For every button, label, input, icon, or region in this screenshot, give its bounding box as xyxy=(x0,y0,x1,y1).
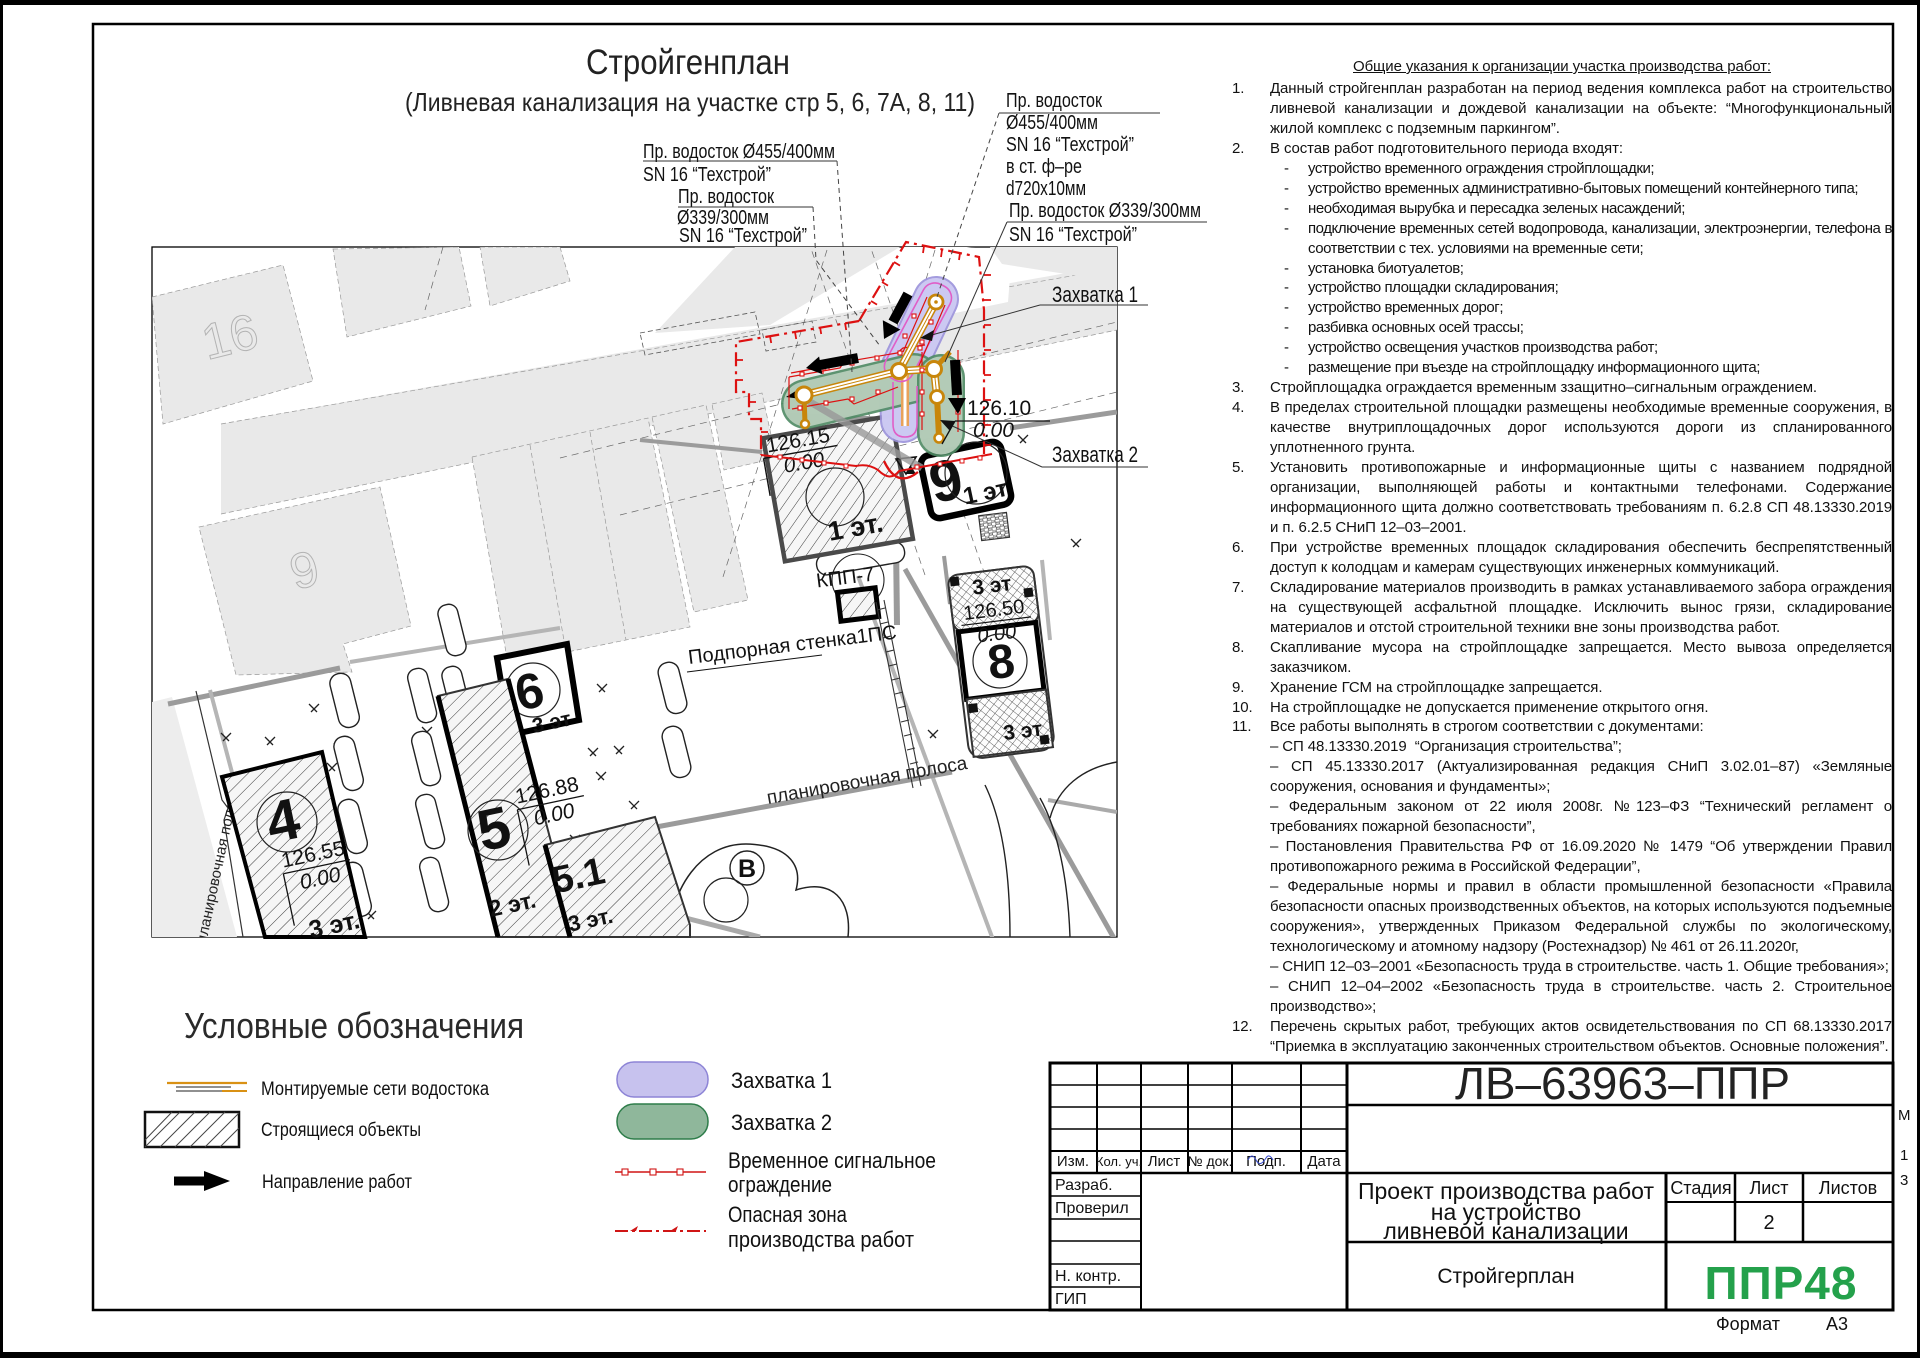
svg-text:d720х10мм: d720х10мм xyxy=(1006,178,1086,200)
svg-text:Монтируемые сети водостока: Монтируемые сети водостока xyxy=(261,1079,489,1100)
svg-text:1: 1 xyxy=(1900,1147,1908,1164)
svg-text:Временное сигнальное: Временное сигнальное xyxy=(728,1148,936,1173)
svg-text:№ док.: № док. xyxy=(1188,1153,1233,1169)
svg-text:SN 16 “Техстрой”: SN 16 “Техстрой” xyxy=(679,225,807,247)
svg-text:Направление работ: Направление работ xyxy=(262,1172,412,1193)
svg-text:Пр. водосток: Пр. водосток xyxy=(1006,90,1102,112)
svg-text:Стройгенплан: Стройгенплан xyxy=(586,43,790,82)
svg-text:ограждение: ограждение xyxy=(728,1172,832,1197)
svg-text:Лист: Лист xyxy=(1148,1153,1181,1170)
svg-text:Н. контр.: Н. контр. xyxy=(1055,1268,1121,1285)
svg-text:Формат: Формат xyxy=(1716,1314,1780,1334)
svg-text:Захватка 1: Захватка 1 xyxy=(731,1068,832,1093)
svg-text:Ø455/400мм: Ø455/400мм xyxy=(1006,112,1098,134)
svg-text:3: 3 xyxy=(1900,1172,1908,1189)
svg-text:Условные обозначения: Условные обозначения xyxy=(184,1005,524,1046)
svg-text:Проверил: Проверил xyxy=(1055,1200,1129,1217)
svg-text:SN 16 “Техстрой”: SN 16 “Техстрой” xyxy=(1006,134,1134,156)
svg-text:Строящиеся объекты: Строящиеся объекты xyxy=(261,1120,421,1141)
svg-text:Пр. водосток: Пр. водосток xyxy=(678,186,774,208)
svg-text:Кол. уч.: Кол. уч. xyxy=(1096,1154,1142,1169)
svg-text:SN 16 “Техстрой”: SN 16 “Техстрой” xyxy=(643,164,771,186)
svg-text:126.10: 126.10 xyxy=(967,397,1031,420)
svg-text:производства работ: производства работ xyxy=(728,1227,914,1252)
svg-text:Пр. водосток Ø339/300мм: Пр. водосток Ø339/300мм xyxy=(1009,200,1201,222)
svg-text:планировочная полоса: планировочная полоса xyxy=(765,753,969,809)
svg-text:В: В xyxy=(738,855,756,883)
svg-text:Стадия: Стадия xyxy=(1670,1178,1731,1198)
svg-text:ППР48: ППР48 xyxy=(1705,1257,1858,1309)
svg-text:Подпорная стенка1ПС: Подпорная стенка1ПС xyxy=(687,622,898,669)
svg-text:Разраб.: Разраб. xyxy=(1055,1177,1113,1194)
svg-text:Захватка 2: Захватка 2 xyxy=(731,1110,832,1135)
svg-text:Изм.: Изм. xyxy=(1057,1153,1089,1170)
svg-text:Стройгерплан: Стройгерплан xyxy=(1437,1265,1574,1288)
svg-text:ЛВ–63963–ППР: ЛВ–63963–ППР xyxy=(1455,1058,1790,1109)
svg-text:SN 16 “Техстрой”: SN 16 “Техстрой” xyxy=(1009,224,1137,246)
svg-text:ливневой канализации: ливневой канализации xyxy=(1383,1218,1628,1244)
svg-text:Пр. водосток Ø455/400мм: Пр. водосток Ø455/400мм xyxy=(643,141,835,163)
svg-text:0.00: 0.00 xyxy=(973,419,1014,442)
svg-text:Листов: Листов xyxy=(1819,1178,1877,1198)
svg-text:ГИП: ГИП xyxy=(1055,1291,1087,1308)
svg-text:(Ливневая канализация на участ: (Ливневая канализация на участке стр 5, … xyxy=(405,87,975,117)
svg-text:Опасная зона: Опасная зона xyxy=(728,1202,848,1227)
svg-text:3 эт: 3 эт xyxy=(1002,717,1044,745)
svg-text:Дата: Дата xyxy=(1307,1153,1341,1170)
svg-text:Захватка 2: Захватка 2 xyxy=(1052,442,1138,467)
svg-text:Захватка 1: Захватка 1 xyxy=(1052,282,1138,307)
svg-text:М: М xyxy=(1898,1107,1911,1124)
svg-text:3 эт: 3 эт xyxy=(971,572,1013,600)
svg-text:Лист: Лист xyxy=(1749,1178,1788,1198)
svg-text:А3: А3 xyxy=(1826,1314,1848,1334)
svg-text:2: 2 xyxy=(1763,1212,1774,1234)
svg-text:в ст. ф–ре: в ст. ф–ре xyxy=(1006,156,1082,178)
